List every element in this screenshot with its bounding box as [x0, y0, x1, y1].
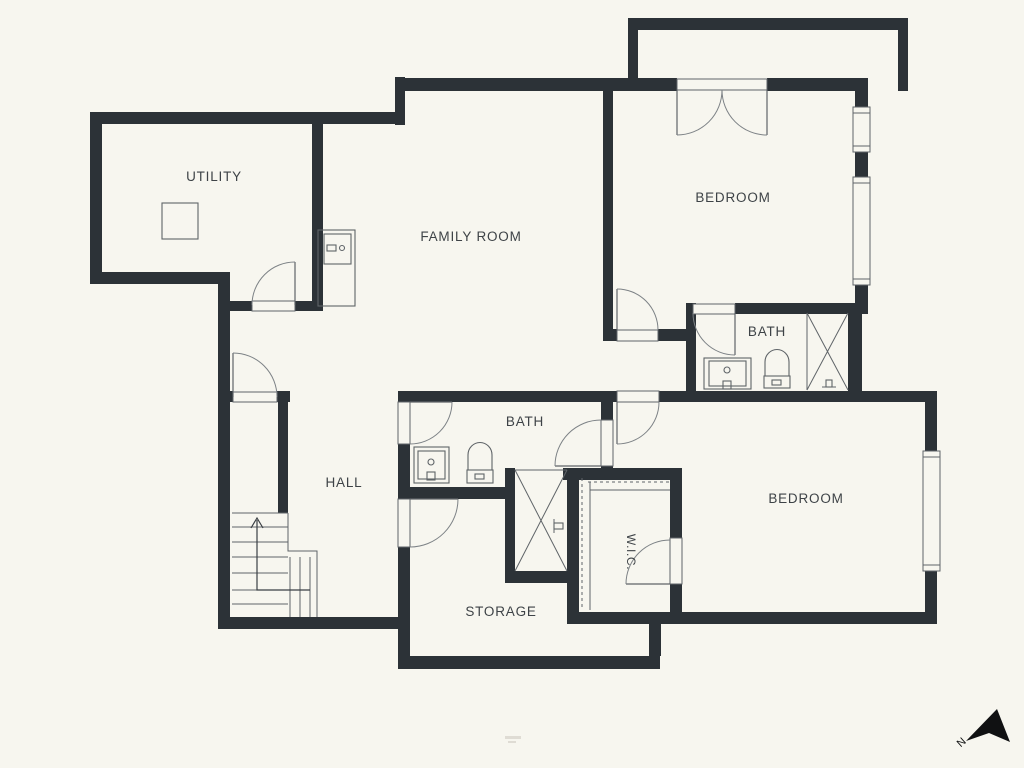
wall-segment [228, 301, 252, 311]
wall-segment [398, 547, 410, 668]
wall-segment [925, 391, 937, 451]
wall-segment [398, 391, 617, 402]
floor-plan-page: UTILITY FAMILY ROOM BEDROOM BATH BATH HA… [0, 0, 1024, 768]
wall-segment [218, 272, 230, 629]
bath-middle-door [398, 402, 452, 444]
bath-middle-sink [414, 447, 449, 483]
room-label-bedroom-bottom: BEDROOM [768, 491, 843, 506]
wall-segment [659, 391, 935, 402]
washer-counter [318, 230, 355, 306]
wall-segment [567, 612, 937, 624]
window [853, 107, 870, 152]
wall-segment [603, 329, 617, 341]
bath-top-sink [704, 358, 751, 389]
wall-segment [603, 85, 613, 341]
room-label-wic: W.I.C. [624, 534, 638, 570]
wall-segment [649, 624, 661, 656]
wall-segment [398, 487, 508, 499]
shower-head-icon [822, 380, 836, 387]
wall-segment [218, 617, 410, 629]
wall-segment [628, 18, 908, 30]
stair-door [233, 353, 277, 402]
windows [853, 107, 940, 571]
wall-segment [898, 18, 908, 91]
room-label-bath-middle: BATH [506, 414, 544, 429]
room-label-bedroom-top: BEDROOM [695, 190, 770, 205]
bath-middle-shower [515, 470, 567, 571]
wall-segment [90, 112, 403, 124]
wall-segment [855, 151, 868, 177]
wall-segment [505, 468, 515, 583]
wall-segment [218, 391, 233, 402]
bath-middle-toilet [467, 442, 493, 483]
wall-segment [686, 303, 696, 402]
bedroom-top-door [617, 289, 658, 341]
wall-segment [670, 480, 682, 538]
bedroom-bottom-door [617, 391, 659, 444]
wall-segment [855, 78, 868, 108]
bath-top-shower [807, 313, 848, 390]
bath-top-toilet [764, 350, 790, 389]
wall-segment [567, 480, 579, 612]
room-label-bath-top: BATH [748, 324, 786, 339]
wall-segment [848, 303, 862, 402]
room-label-storage: STORAGE [465, 604, 536, 619]
room-label-hall: HALL [326, 475, 363, 490]
watermark [505, 736, 521, 743]
window [923, 451, 940, 571]
floor-plan: UTILITY FAMILY ROOM BEDROOM BATH BATH HA… [0, 0, 1024, 768]
room-label-family-room: FAMILY ROOM [420, 229, 521, 244]
wall-segment [563, 468, 682, 480]
shower-head-icon [554, 519, 563, 533]
window [853, 177, 870, 285]
wall-segment [90, 272, 230, 284]
wall-segment [767, 78, 868, 91]
wall-segment [686, 303, 693, 314]
wall-segment [670, 584, 682, 612]
storage-door [398, 499, 458, 547]
north-arrow: N [955, 709, 1010, 750]
wall-segment [398, 656, 660, 669]
north-arrow-icon [966, 709, 1010, 742]
wall-segment [925, 571, 937, 624]
bath-middle-east-door [555, 420, 613, 466]
wall-segment [277, 391, 290, 402]
bedroom-double-doors [677, 79, 767, 135]
north-letter: N [955, 736, 969, 750]
walls [90, 18, 937, 669]
utility-appliance [162, 203, 198, 239]
stair-direction-arrow [251, 518, 310, 590]
bath-top-door [693, 304, 735, 355]
room-label-utility: UTILITY [186, 169, 242, 184]
wall-segment [90, 112, 102, 284]
wall-segment [278, 402, 288, 513]
wall-segment [601, 402, 613, 420]
utility-door [252, 262, 295, 311]
staircase [232, 513, 317, 617]
